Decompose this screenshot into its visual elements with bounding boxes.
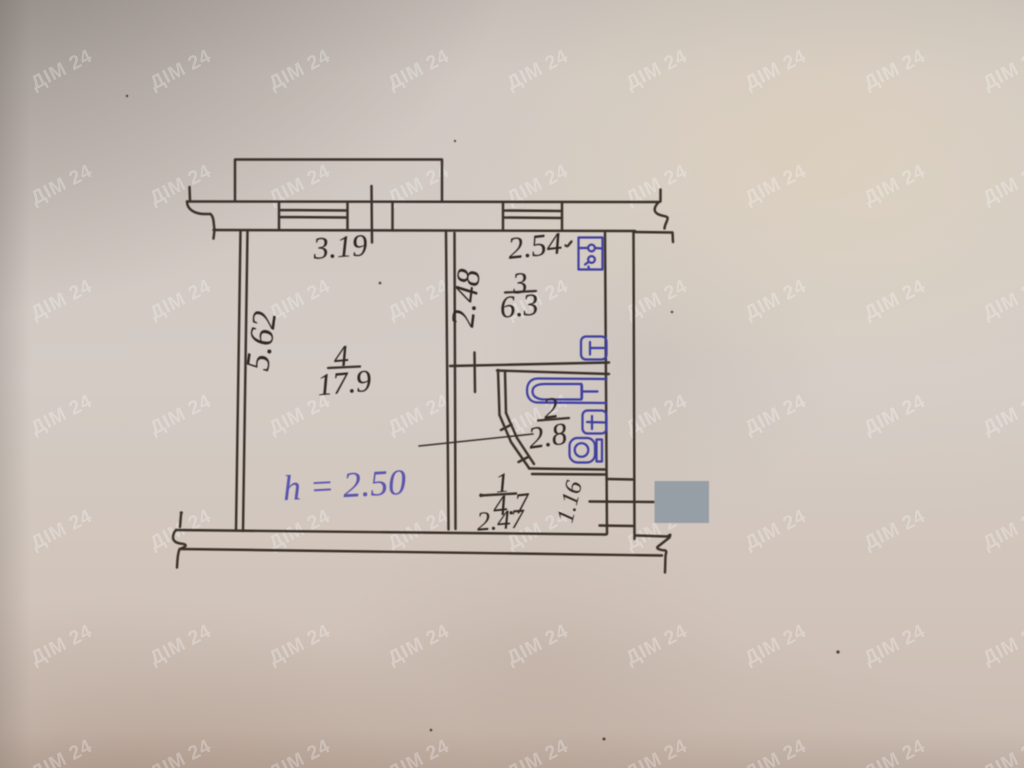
svg-text:ДІМ 24: ДІМ 24 bbox=[503, 620, 572, 669]
svg-text:ДІМ 24: ДІМ 24 bbox=[27, 735, 96, 768]
svg-text:ДІМ 24: ДІМ 24 bbox=[979, 45, 1024, 94]
svg-text:ДІМ 24: ДІМ 24 bbox=[27, 160, 96, 209]
svg-text:ДІМ 24: ДІМ 24 bbox=[860, 505, 929, 554]
svg-text:ДІМ 24: ДІМ 24 bbox=[384, 505, 453, 554]
svg-text:6.3: 6.3 bbox=[498, 286, 540, 324]
svg-text:ДІМ 24: ДІМ 24 bbox=[979, 735, 1024, 768]
svg-text:2.48: 2.48 bbox=[445, 267, 488, 329]
svg-text:ДІМ 24: ДІМ 24 bbox=[741, 735, 810, 768]
svg-text:ДІМ 24: ДІМ 24 bbox=[27, 275, 96, 324]
svg-text:5.62: 5.62 bbox=[239, 309, 284, 373]
svg-text:ДІМ 24: ДІМ 24 bbox=[503, 735, 572, 768]
svg-text:2.47: 2.47 bbox=[476, 503, 527, 536]
svg-text:ДІМ 24: ДІМ 24 bbox=[860, 735, 929, 768]
svg-text:2.54: 2.54 bbox=[506, 225, 564, 265]
svg-text:ДІМ 24: ДІМ 24 bbox=[265, 505, 334, 554]
svg-text:ДІМ 24: ДІМ 24 bbox=[146, 620, 215, 669]
svg-text:ДІМ 24: ДІМ 24 bbox=[979, 505, 1024, 554]
svg-text:ДІМ 24: ДІМ 24 bbox=[860, 390, 929, 439]
svg-text:ДІМ 24: ДІМ 24 bbox=[622, 735, 691, 768]
svg-text:ДІМ 24: ДІМ 24 bbox=[741, 45, 810, 94]
svg-text:ДІМ 24: ДІМ 24 bbox=[265, 45, 334, 94]
svg-text:3.19: 3.19 bbox=[311, 227, 369, 266]
svg-text:ДІМ 24: ДІМ 24 bbox=[384, 620, 453, 669]
svg-text:ДІМ 24: ДІМ 24 bbox=[384, 45, 453, 94]
svg-text:2.8: 2.8 bbox=[526, 416, 570, 456]
svg-text:ДІМ 24: ДІМ 24 bbox=[622, 45, 691, 94]
svg-text:h = 2.50: h = 2.50 bbox=[282, 462, 407, 508]
svg-text:ДІМ 24: ДІМ 24 bbox=[27, 505, 96, 554]
svg-text:ДІМ 24: ДІМ 24 bbox=[622, 620, 691, 669]
svg-text:ДІМ 24: ДІМ 24 bbox=[860, 160, 929, 209]
svg-text:ДІМ 24: ДІМ 24 bbox=[27, 45, 96, 94]
svg-text:ДІМ 24: ДІМ 24 bbox=[384, 390, 453, 439]
svg-text:ДІМ 24: ДІМ 24 bbox=[384, 275, 453, 324]
svg-text:ДІМ 24: ДІМ 24 bbox=[146, 45, 215, 94]
svg-text:ДІМ 24: ДІМ 24 bbox=[741, 275, 810, 324]
svg-text:ДІМ 24: ДІМ 24 bbox=[741, 620, 810, 669]
svg-text:ДІМ 24: ДІМ 24 bbox=[860, 620, 929, 669]
svg-text:ДІМ 24: ДІМ 24 bbox=[146, 390, 215, 439]
svg-text:ДІМ 24: ДІМ 24 bbox=[622, 390, 691, 439]
svg-text:ДІМ 24: ДІМ 24 bbox=[146, 275, 215, 324]
svg-text:ДІМ 24: ДІМ 24 bbox=[741, 160, 810, 209]
svg-text:1.16: 1.16 bbox=[553, 478, 588, 525]
svg-text:ДІМ 24: ДІМ 24 bbox=[979, 275, 1024, 324]
svg-text:ДІМ 24: ДІМ 24 bbox=[741, 390, 810, 439]
svg-text:ДІМ 24: ДІМ 24 bbox=[860, 275, 929, 324]
svg-text:ДІМ 24: ДІМ 24 bbox=[979, 160, 1024, 209]
svg-text:17.9: 17.9 bbox=[316, 363, 373, 403]
svg-text:ДІМ 24: ДІМ 24 bbox=[27, 620, 96, 669]
svg-text:ДІМ 24: ДІМ 24 bbox=[741, 505, 810, 554]
svg-text:ДІМ 24: ДІМ 24 bbox=[384, 735, 453, 768]
svg-text:ДІМ 24: ДІМ 24 bbox=[860, 45, 929, 94]
svg-text:ДІМ 24: ДІМ 24 bbox=[146, 735, 215, 768]
svg-text:ДІМ 24: ДІМ 24 bbox=[265, 735, 334, 768]
svg-text:ДІМ 24: ДІМ 24 bbox=[265, 620, 334, 669]
svg-text:ДІМ 24: ДІМ 24 bbox=[27, 390, 96, 439]
svg-text:ДІМ 24: ДІМ 24 bbox=[979, 620, 1024, 669]
svg-text:ДІМ 24: ДІМ 24 bbox=[503, 45, 572, 94]
svg-text:ДІМ 24: ДІМ 24 bbox=[979, 390, 1024, 439]
